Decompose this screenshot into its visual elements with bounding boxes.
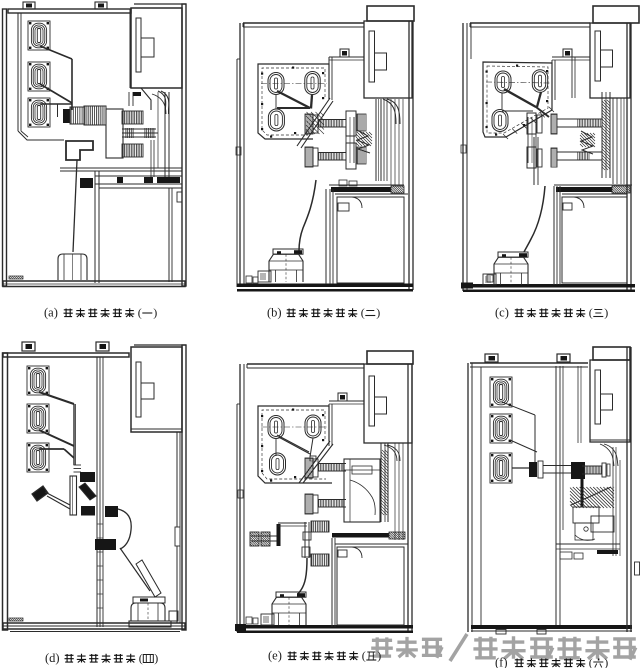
- svg-text:(: (: [139, 651, 143, 665]
- svg-text:(: (: [589, 656, 593, 668]
- svg-text:(c): (c): [495, 306, 509, 320]
- svg-text:(a): (a): [44, 306, 58, 320]
- svg-text:(f): (f): [495, 656, 508, 668]
- svg-text:(e): (e): [268, 649, 282, 663]
- svg-text:): ): [376, 306, 380, 320]
- svg-text:): ): [604, 656, 608, 668]
- svg-text:(: (: [362, 649, 366, 663]
- svg-text:(b): (b): [267, 306, 282, 320]
- svg-text:(: (: [138, 306, 142, 320]
- svg-text:): ): [377, 649, 381, 663]
- svg-text:(: (: [589, 306, 593, 320]
- svg-text:): ): [604, 306, 608, 320]
- svg-text:): ): [153, 306, 157, 320]
- svg-text:(d): (d): [45, 651, 60, 665]
- svg-text:): ): [154, 651, 158, 665]
- svg-text:(: (: [361, 306, 365, 320]
